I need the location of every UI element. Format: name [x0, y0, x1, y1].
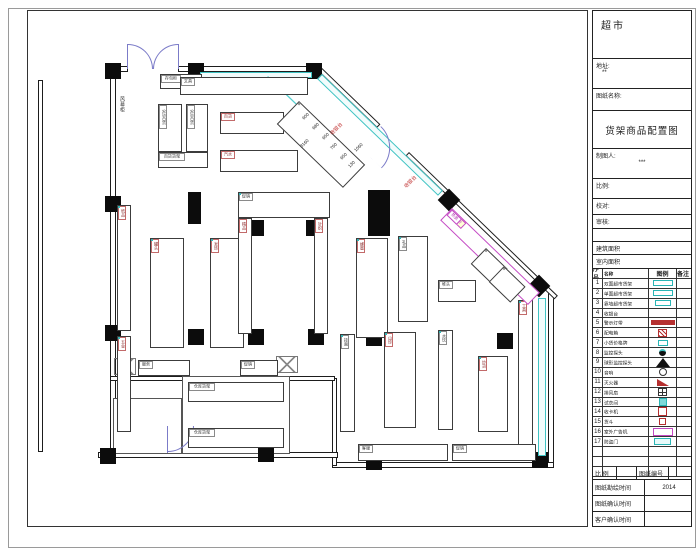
shelf-cell: 罐头: [151, 239, 159, 253]
red-outline-icon: [658, 407, 667, 416]
legend-cell: 8: [593, 348, 603, 357]
legend-cell: [649, 457, 677, 466]
cyan-label-icon: [654, 438, 671, 445]
shelf-gondola: 酒水饮料乳品冲调粮油调味纸品: [117, 205, 131, 331]
shelf-endcap: [118, 206, 120, 208]
legend-row: 2单面超市货架: [593, 289, 691, 299]
shelf-cell: 文具: [181, 78, 195, 86]
legend-cell: [649, 318, 677, 327]
shelf-cell-label: 蜂蜜: [359, 242, 363, 250]
shelf-gondola: 日配休闲百货文具: [180, 77, 308, 95]
shelf-endcap: [341, 335, 343, 337]
dot-arc-icon: [659, 349, 666, 356]
shelf-endcap: [439, 331, 441, 333]
shelf-cell-label: 针织: [317, 222, 321, 230]
legend-cell: 排风扇: [603, 388, 649, 397]
legend-cell: [677, 309, 691, 318]
survey-time-row: 图纸勘绘时间 2014: [593, 480, 691, 496]
shelf-endcap: [118, 337, 120, 339]
interior-area-label: 室内面积: [596, 257, 688, 266]
drawing-page: 存包柜日配休闲百货文具915百货910百货百货货架饰品洗化百货文具玩具精品汽水酒…: [0, 0, 700, 555]
shelf-gondola: 米面粮油食油杂粮挂面: [340, 334, 355, 432]
legend-cell: 音响: [603, 368, 649, 377]
legend-cell: 14: [593, 407, 603, 416]
legend-cell: 收卡机: [603, 407, 649, 416]
drawing-title: 货架商品配置图: [593, 111, 691, 149]
legend-cell: [677, 427, 691, 436]
shelf-endcap: [357, 239, 359, 241]
shelf-cell: 礼品: [399, 237, 407, 251]
shelf-cell: 百货货架: [159, 153, 185, 161]
shelf-cell-label: 仓库货架: [194, 385, 210, 389]
shelf-cell-label: 服务: [142, 363, 150, 367]
door-leaf: [178, 44, 179, 69]
drawing-name-row: 图纸名称:: [593, 89, 691, 111]
drawing-number-value: [669, 467, 691, 479]
legend-row: 3靠墙超市货架: [593, 299, 691, 309]
shelf-gondola: 调味酱油食醋味精香料腌制酱菜罐头南北干货海味山珍: [384, 332, 416, 428]
legend-cell: 货斗: [603, 417, 649, 426]
shelf-cell-label: 促销: [244, 363, 252, 367]
legend-cell: [649, 378, 677, 387]
legend-row: [593, 457, 691, 467]
red-hatch-icon: [658, 329, 667, 337]
red-bar-icon: [651, 320, 675, 325]
legend-cell: 配电箱: [603, 328, 649, 337]
shelf-gondola: 方便速食罐头饮用水饮: [438, 330, 453, 430]
legend-cell: [649, 398, 677, 407]
legend-cell: [677, 318, 691, 327]
shelf-cell-label: 堆头: [442, 283, 450, 287]
shelf-gondola: 清洁日杂家居文体五金: [117, 336, 131, 432]
legend-cell: [649, 437, 677, 446]
legend-cell: [677, 457, 691, 466]
legend-cell: 9: [593, 358, 603, 367]
shelf-cell: 纸品: [118, 206, 126, 220]
address-label: 地址:: [596, 61, 688, 70]
cyan-fill-icon: [659, 398, 667, 406]
legend-header-row: 序号名称图例备注: [593, 269, 691, 279]
shelf-cell-label: 纸品: [120, 209, 124, 217]
legend-cell: 防盗门: [603, 437, 649, 446]
shelf-cell: 促销: [239, 193, 253, 201]
address-row: 地址: **: [593, 59, 691, 89]
legend-cell: 备注: [677, 269, 691, 278]
shelf-cell: 百货: [221, 113, 235, 121]
shelf-cell: 水饮: [439, 331, 447, 345]
shelf-endcap: [399, 237, 401, 239]
legend-cell: [603, 457, 649, 466]
plan-label: 风幕柜: [119, 96, 124, 113]
shelf-gondola: 促销堆头: [438, 280, 476, 302]
legend-cell: 16: [593, 427, 603, 436]
legend-cell: [649, 358, 677, 367]
building-area-label: 建筑面积: [596, 244, 688, 253]
shelf-cell: 堆头: [439, 281, 453, 289]
shelf-cell: 促销: [453, 445, 467, 453]
legend-cell: [677, 388, 691, 397]
interior-area-row: 室内面积: [593, 255, 691, 269]
shelf-gondola: 百货货架: [158, 152, 208, 168]
shelf-gondola: 零食饼干糕点糖果巧克果冻膨化炒货: [478, 356, 508, 432]
legend-cell: [649, 407, 677, 416]
confirm-time-row: 图纸确认时间: [593, 496, 691, 512]
shelf-cell-label: 水饮: [441, 334, 445, 342]
shelf-cell-label: 促销: [456, 447, 464, 451]
plan-label: 收银台: [404, 175, 418, 189]
legend-cell: [677, 447, 691, 456]
shelf-cell-label: 精品: [241, 222, 245, 230]
column: [100, 448, 116, 464]
shelf-gondola: 雨具季节促销: [452, 444, 536, 461]
column: [497, 333, 513, 349]
door-arc: [128, 44, 153, 69]
door-leaf: [167, 426, 168, 453]
scale-number-row: 比 例 图纸编号: [593, 467, 691, 480]
legend-cell: 11: [593, 378, 603, 387]
shelf-cell-label: 炒货: [481, 360, 485, 368]
shelf-cell: 服务: [139, 361, 153, 369]
legend-cell: 收银台: [603, 309, 649, 318]
shelf-cell: 蜂蜜: [357, 239, 365, 253]
shelf-gondola: 挂件饰品促销: [238, 192, 330, 218]
building-area-row: 建筑面积: [593, 242, 691, 255]
legend-row: 9球形监控探头: [593, 358, 691, 368]
grid-sq-icon: [658, 388, 667, 396]
confirm-time-value: [645, 496, 691, 511]
shelf-gondola: 内衣袜子毛巾床品拖鞋箱包针织: [314, 218, 328, 334]
shelf-cell: 发饰: [211, 239, 219, 253]
legend-cell: 5: [593, 318, 603, 327]
scale-label: 比例:: [596, 181, 688, 190]
legend-cell: 15: [593, 417, 603, 426]
legend-cell: [677, 437, 691, 446]
legend-cell: 序号: [593, 269, 603, 278]
legend-cell: 警示灯带: [603, 318, 649, 327]
column: [105, 63, 121, 79]
shelf-cell-label: 礼品: [401, 240, 405, 248]
shelf-cell: 910百货: [187, 105, 195, 129]
shelf-cell: 客服: [359, 445, 373, 453]
shelf-cell-label: 汽水: [224, 153, 232, 157]
legend-cell: [649, 279, 677, 288]
shelf-cell-label: 促销: [242, 195, 250, 199]
shelf-cell-label: 热卖: [450, 213, 459, 222]
column: [188, 329, 204, 345]
legend-cell: 单面超市货架: [603, 289, 649, 298]
legend-cell: [649, 427, 677, 436]
shelf-cell-label: 挂面: [343, 338, 347, 346]
shelf-cell-label: 五金: [120, 340, 124, 348]
shelf-gondola: 粮油调味南北干货方便冲调饼干糖果蜜饯坚果炒货罐头: [150, 238, 184, 348]
legend-cell: 2: [593, 289, 603, 298]
shelf-cell: 山珍: [385, 333, 393, 347]
legend-row: 8监控探头: [593, 348, 691, 358]
magenta-rect-icon: [653, 428, 673, 436]
legend-cell: [677, 358, 691, 367]
circle-icon: [659, 368, 667, 376]
legend-cell: 4: [593, 309, 603, 318]
client-time-row: 客户确认时间: [593, 512, 691, 527]
legend-cell: [677, 368, 691, 377]
legend-cell: 灭火器: [603, 378, 649, 387]
drafter-label: 制图人:: [596, 151, 688, 160]
shelf-gondola: 910百货: [186, 104, 208, 152]
solid-fixture: [188, 192, 201, 224]
legend-row: [593, 447, 691, 457]
shelf-cell: 915百货: [159, 105, 167, 129]
drawing-number-label: 图纸编号: [637, 467, 669, 479]
red-outline-sm-icon: [659, 418, 666, 425]
store-name: 超市: [593, 11, 691, 59]
legend-row: 11灭火器: [593, 378, 691, 388]
shelf-gondola: 饰品洗化百货: [220, 112, 284, 134]
shelf-gondola: 915百货: [158, 104, 182, 152]
shelf-cell: 精品: [239, 219, 247, 233]
legend-cell: 13: [593, 398, 603, 407]
legend-cell: [649, 388, 677, 397]
shelf-gondola: [277, 101, 365, 188]
blank-row: [593, 229, 691, 242]
drafter-value: ***: [596, 160, 688, 166]
legend-cell: [677, 338, 691, 347]
shelf-cell-label: 山珍: [387, 336, 391, 344]
wall: [548, 292, 554, 468]
shelf-cell-label: 发饰: [213, 242, 217, 250]
shelf-cell-label: 百货: [224, 115, 232, 119]
legend-cell: [649, 338, 677, 347]
shelf-cell-label: 罐头: [153, 242, 157, 250]
legend-cell: [677, 398, 691, 407]
shelf-cell: [298, 102, 301, 105]
legend-cell: 监控探头: [603, 348, 649, 357]
shelf-cell: 挂面: [341, 335, 349, 349]
fan-icon: [656, 358, 670, 367]
shelf-cell: 五金: [118, 337, 126, 351]
check-row: 校对:: [593, 199, 691, 215]
legend-row: 16室外广告机: [593, 427, 691, 437]
shelf-gondola: 促销: [240, 360, 278, 376]
legend-cell: 10: [593, 368, 603, 377]
shelf-cell-label: 910百货: [189, 110, 193, 125]
legend-cell: 双面超市货架: [603, 279, 649, 288]
drawing-name-label: 图纸名称:: [596, 91, 688, 100]
legend-cell: [677, 299, 691, 308]
legend-cell: 7: [593, 338, 603, 347]
red-flag-icon: [657, 379, 669, 386]
legend-row: 14收卡机: [593, 407, 691, 417]
legend-table: 序号名称图例备注1双面超市货架2单面超市货架3靠墙超市货架4收银台5警示灯带6配…: [593, 269, 691, 477]
cyan-sm-icon: [658, 340, 668, 346]
legend-cell: [677, 407, 691, 416]
legend-cell: [677, 348, 691, 357]
shelf-cell: [503, 267, 506, 270]
shelf-cell-label: 仓库货架: [194, 431, 210, 435]
legend-cell: [649, 417, 677, 426]
legend-cell: [677, 279, 691, 288]
shelf-gondola: 家电小家电器插排灯具电池五金工具: [518, 300, 533, 452]
shelf-endcap: [211, 239, 213, 241]
wall-shelf-band: [538, 298, 546, 456]
shelf-cell: 汽水: [221, 151, 235, 159]
legend-cell: [677, 328, 691, 337]
legend-cell: [603, 447, 649, 456]
shelf-cell: 仓库货架: [189, 429, 215, 437]
legend-row: 12排风扇: [593, 388, 691, 398]
survey-time-value: 2014: [645, 480, 691, 495]
legend-cell: 试衣间: [603, 398, 649, 407]
cyan-rect-icon: [653, 280, 673, 286]
legend-cell: [649, 447, 677, 456]
legend-cell: 靠墙超市货架: [603, 299, 649, 308]
legend-cell: 球形监控探头: [603, 358, 649, 367]
solid-fixture: [368, 190, 390, 236]
drafter-row: 制图人: ***: [593, 149, 691, 179]
shelf-cell-label: 915百货: [161, 110, 165, 125]
client-time-value: [645, 512, 691, 527]
legend-cell: 6: [593, 328, 603, 337]
shelf-gondola: 酒水白酒红酒啤酒饮料果汁茶饮乳品奶粉麦片冲饮蜂蜜: [356, 238, 388, 338]
door-leaf: [127, 44, 128, 69]
legend-cell: 名称: [603, 269, 649, 278]
shelf-cell-label: 存包柜: [165, 77, 177, 81]
legend-cell: [649, 328, 677, 337]
title-block: 超市 地址: ** 图纸名称: 货架商品配置图 制图人: *** 比例: 校对:…: [592, 10, 692, 527]
plan-label: 收银台: [330, 122, 344, 136]
shelf-endcap: [519, 301, 521, 303]
legend-cell: 1: [593, 279, 603, 288]
shelf-gondola: 精品名烟名酒茶叶滋补礼盒保健参茸燕窝礼品: [398, 236, 428, 322]
legend-cell: 图例: [649, 269, 677, 278]
shelf-cell-label: 工具: [521, 304, 525, 312]
shelf-cell: 存包柜: [161, 75, 181, 83]
legend-row: 13试衣间: [593, 398, 691, 408]
legend-cell: [649, 289, 677, 298]
legend-cell: [677, 417, 691, 426]
legend-cell: 17: [593, 437, 603, 446]
review-row: 审核:: [593, 215, 691, 229]
shelf-gondola: 文具玩具图书期刊音像礼品精品: [238, 218, 252, 334]
wall: [38, 80, 43, 452]
legend-cell: [677, 378, 691, 387]
legend-cell: [593, 447, 603, 456]
scale-bottom-value: [617, 467, 637, 479]
confirm-time-label: 图纸确认时间: [593, 496, 645, 511]
shelf-cell-label: 客服: [362, 447, 370, 451]
cyan-rect-sm-icon: [655, 300, 671, 306]
legend-cell: [593, 457, 603, 466]
shelf-endcap: [151, 239, 153, 241]
diagonal-wall: [317, 66, 381, 128]
shelf-cell: 仓库货架: [189, 383, 215, 391]
crossed-fixture: [276, 356, 298, 373]
legend-row: 5警示灯带: [593, 318, 691, 328]
shelf-cell: 针织: [315, 219, 323, 233]
shelf-endcap: [239, 193, 241, 195]
shelf-gondola: 仓库货架仓库货架: [188, 428, 284, 448]
legend-row: 7小货价格牌: [593, 338, 691, 348]
check-label: 校对:: [596, 201, 688, 210]
shelf-endcap: [479, 357, 481, 359]
survey-time-label: 图纸勘绘时间: [593, 480, 645, 495]
legend-cell: 12: [593, 388, 603, 397]
column: [258, 446, 274, 462]
legend-row: 15货斗: [593, 417, 691, 427]
legend-row: 1双面超市货架: [593, 279, 691, 289]
door-arc: [153, 44, 178, 69]
shelf-cell: 促销: [241, 361, 255, 369]
address-value: **: [596, 70, 688, 76]
legend-row: 17防盗门: [593, 437, 691, 447]
client-time-label: 客户确认时间: [593, 512, 645, 527]
shelf-gondola: 休息服务: [138, 360, 190, 376]
legend-cell: 室外广告机: [603, 427, 649, 436]
scale-row: 比例:: [593, 179, 691, 199]
shelf-cell: 炒货: [479, 357, 487, 371]
shelf-endcap: [385, 333, 387, 335]
shelf-cell-label: 百货货架: [164, 155, 180, 159]
legend-cell: [649, 368, 677, 377]
legend-cell: 3: [593, 299, 603, 308]
shelf-gondola: 仓库货架仓库货架: [188, 382, 284, 402]
shelf-gondola: 收货打包客服: [358, 444, 448, 461]
shelf-gondola: 文具玩具精品汽水: [220, 150, 298, 172]
review-label: 审核:: [596, 217, 688, 226]
legend-cell: [649, 309, 677, 318]
legend-row: 10音响: [593, 368, 691, 378]
cyan-rect-icon: [653, 290, 673, 296]
scale-bottom-label: 比 例: [593, 467, 617, 479]
legend-cell: [649, 299, 677, 308]
legend-cell: [677, 289, 691, 298]
shelf-cell-label: 文具: [184, 80, 192, 84]
legend-row: 6配电箱: [593, 328, 691, 338]
shelf-cell: [485, 249, 488, 252]
legend-row: 4收银台: [593, 309, 691, 319]
legend-cell: 小货价格牌: [603, 338, 649, 347]
legend-cell: [649, 348, 677, 357]
